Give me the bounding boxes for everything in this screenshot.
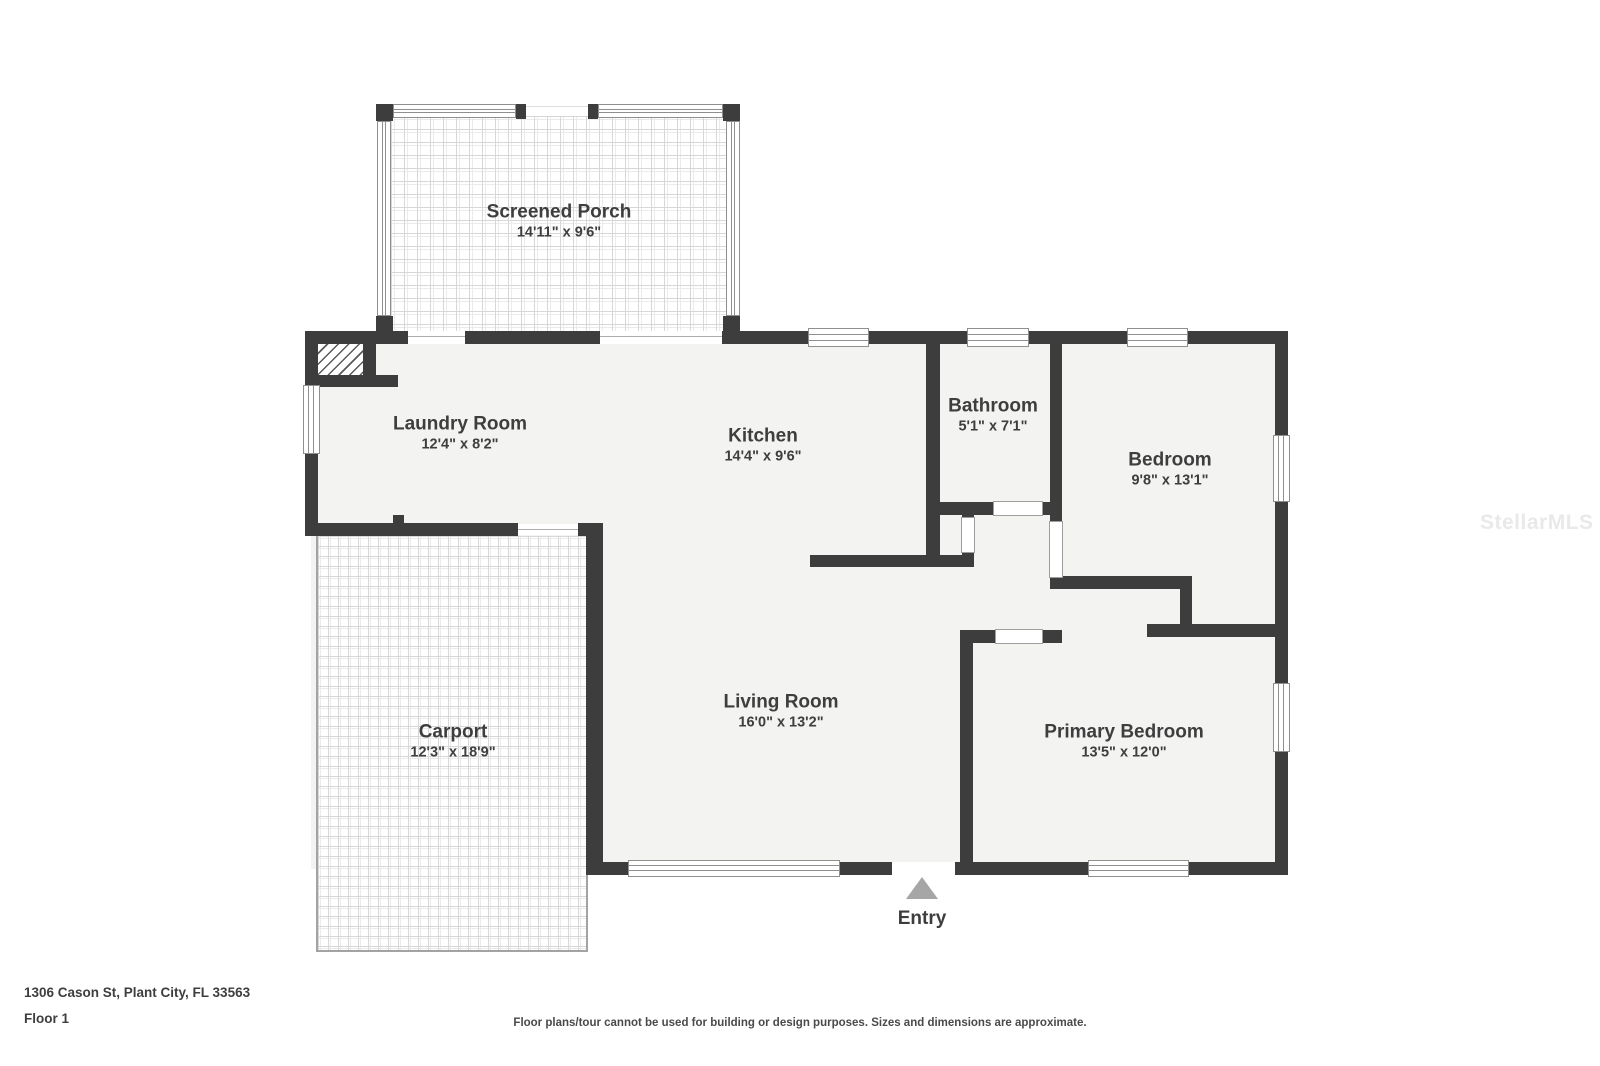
sliding-door-opening — [600, 331, 722, 344]
room-name: Carport — [410, 722, 495, 744]
window — [1273, 435, 1290, 502]
wall — [926, 502, 993, 515]
room-dims: 14'11" x 9'6" — [487, 224, 632, 243]
room-dims: 12'3" x 18'9" — [410, 744, 495, 763]
window — [303, 385, 320, 454]
floor-number-label: Floor 1 — [24, 1011, 69, 1026]
window — [808, 328, 869, 347]
window — [1273, 683, 1290, 752]
wall — [1275, 331, 1288, 875]
wall — [1050, 344, 1062, 521]
room-label-primary-bedroom: Primary Bedroom 13'5" x 12'0" — [1044, 722, 1203, 763]
porch-post — [588, 104, 598, 119]
wall — [926, 344, 940, 567]
room-label-screened-porch: Screened Porch 14'11" x 9'6" — [487, 202, 632, 243]
porch-screen — [377, 121, 391, 316]
window — [628, 860, 840, 877]
room-dims: 12'4" x 8'2" — [393, 436, 527, 455]
porch-screen — [598, 104, 723, 118]
wall — [393, 515, 404, 523]
room-label-kitchen: Kitchen 14'4" x 9'6" — [724, 426, 801, 467]
wall — [1043, 630, 1062, 643]
wall — [305, 523, 518, 536]
stellar-mls-watermark: StellarMLS — [1480, 511, 1594, 535]
wall — [960, 630, 973, 875]
porch-post — [376, 316, 393, 333]
bathroom-door — [993, 501, 1043, 516]
room-label-living-room: Living Room 16'0" x 13'2" — [723, 692, 838, 733]
entry-opening — [892, 862, 955, 875]
room-name: Screened Porch — [487, 202, 632, 224]
porch-opening-threshold — [526, 106, 588, 107]
room-dims: 9'8" x 13'1" — [1128, 472, 1211, 491]
porch-post — [723, 316, 740, 333]
room-name: Laundry Room — [393, 414, 527, 436]
room-dims: 5'1" x 7'1" — [948, 418, 1038, 437]
room-name: Primary Bedroom — [1044, 722, 1203, 744]
wall — [1050, 576, 1192, 589]
floor-plan-canvas: StellarMLS — [0, 0, 1600, 1066]
room-name: Bathroom — [948, 396, 1038, 418]
porch-post — [723, 104, 740, 121]
property-address: 1306 Cason St, Plant City, FL 33563 — [24, 985, 250, 1000]
window — [967, 328, 1029, 347]
entry-label: Entry — [898, 908, 947, 930]
porch-screen — [393, 104, 516, 118]
room-label-bathroom: Bathroom 5'1" x 7'1" — [948, 396, 1038, 437]
wall — [586, 523, 603, 875]
room-name: Bedroom — [1128, 450, 1211, 472]
entry-arrow-icon — [906, 877, 938, 899]
primary-bedroom-door — [995, 629, 1043, 644]
wall — [810, 555, 974, 567]
room-label-carport: Carport 12'3" x 18'9" — [410, 722, 495, 763]
sliding-door-opening — [518, 524, 578, 535]
porch-post — [376, 104, 393, 121]
room-dims: 13'5" x 12'0" — [1044, 744, 1203, 763]
disclaimer-text: Floor plans/tour cannot be used for buil… — [513, 1017, 1086, 1029]
room-label-laundry-room: Laundry Room 12'4" x 8'2" — [393, 414, 527, 455]
porch-post — [516, 104, 526, 119]
room-dims: 16'0" x 13'2" — [723, 714, 838, 733]
room-label-bedroom: Bedroom 9'8" x 13'1" — [1128, 450, 1211, 491]
room-name: Living Room — [723, 692, 838, 714]
porch-screen — [726, 121, 740, 316]
window — [1127, 328, 1188, 347]
room-name: Kitchen — [724, 426, 801, 448]
water-heater-hatch — [318, 344, 363, 375]
bedroom-door — [1049, 521, 1063, 578]
sliding-door-opening — [408, 331, 465, 344]
window — [1088, 860, 1189, 877]
wall — [1147, 624, 1288, 637]
hallway-door — [961, 517, 975, 553]
room-dims: 14'4" x 9'6" — [724, 448, 801, 467]
